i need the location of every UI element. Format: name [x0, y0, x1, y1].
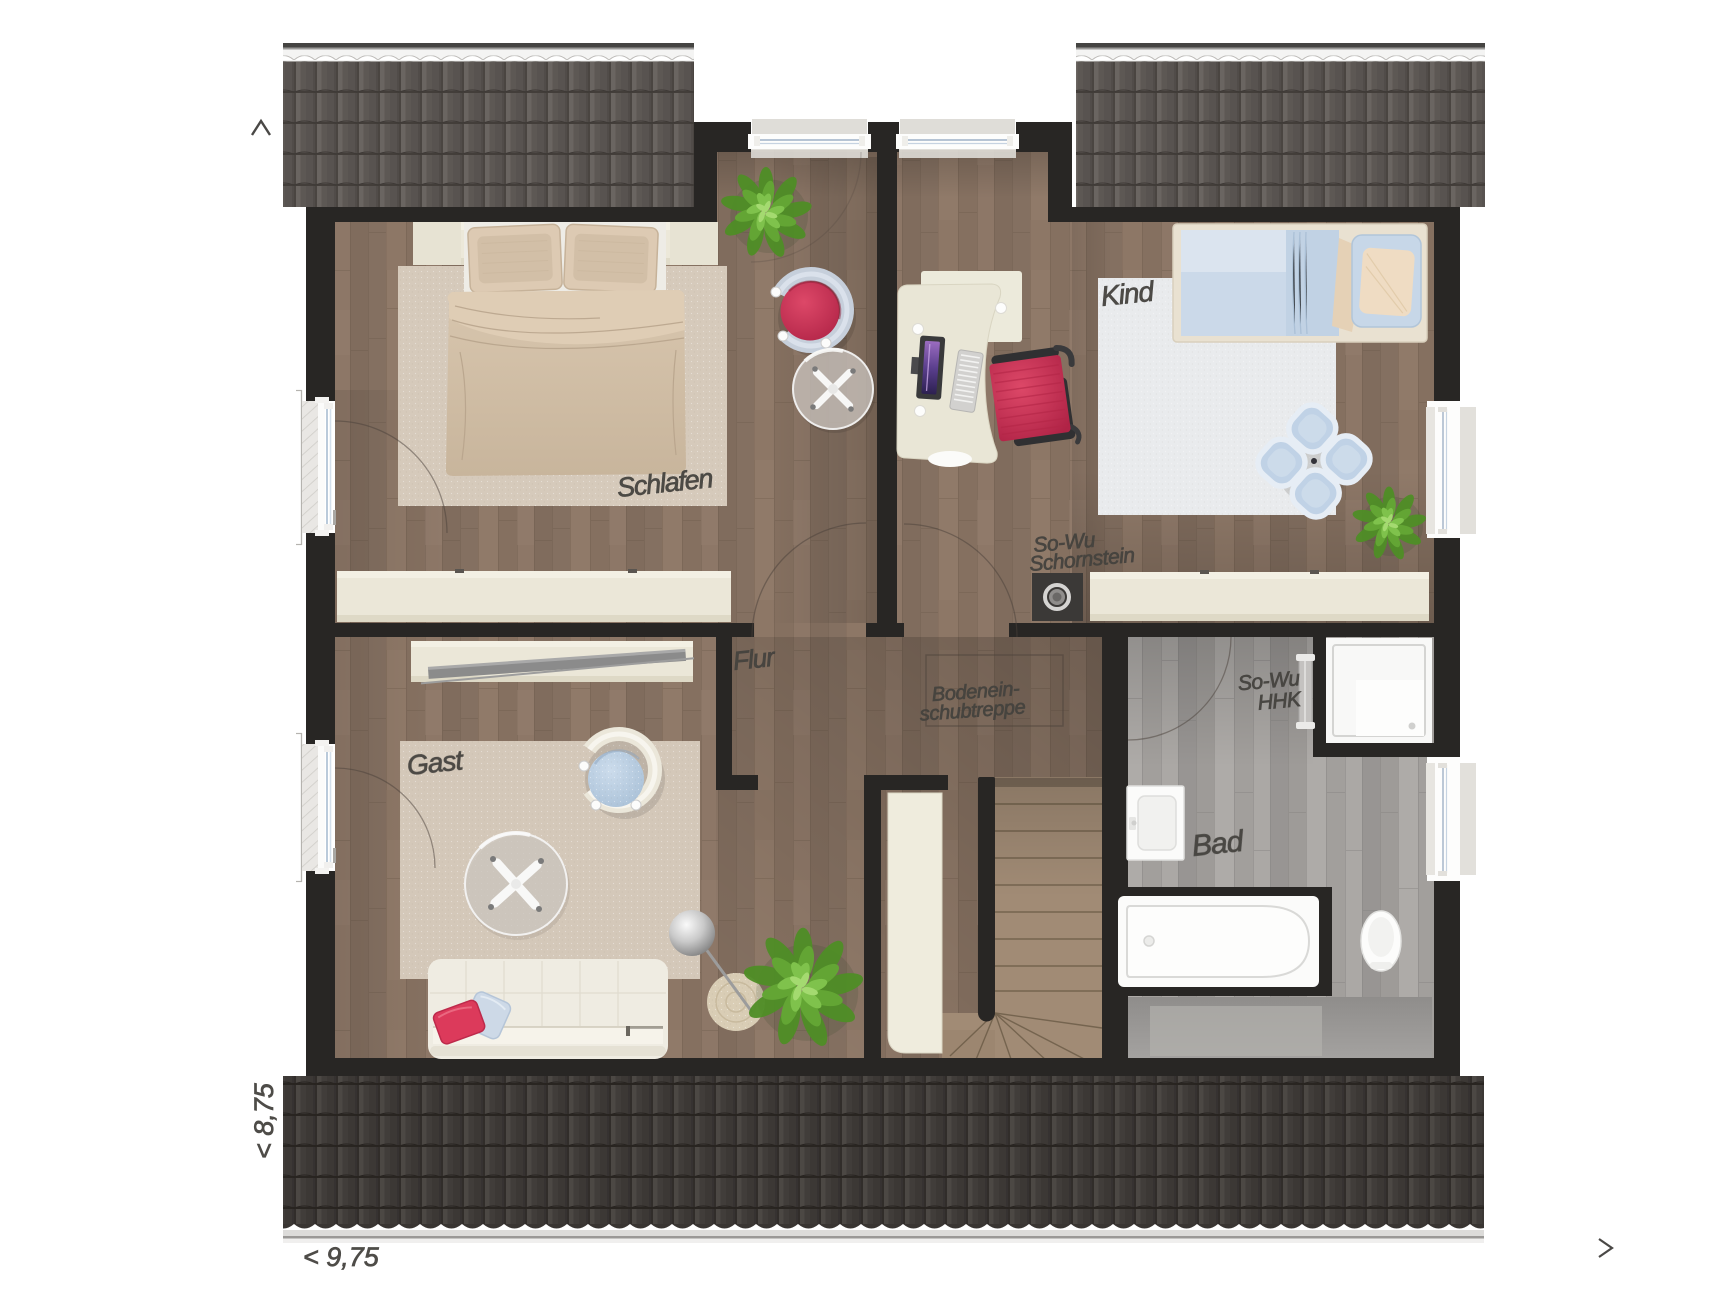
svg-text:< 8,75: < 8,75 [249, 1082, 279, 1159]
svg-text:HHK: HHK [1257, 688, 1303, 715]
svg-text:< 9,75: < 9,75 [303, 1242, 380, 1272]
svg-text:Gast: Gast [405, 744, 465, 781]
svg-text:Kind: Kind [1099, 275, 1156, 312]
svg-text:Bad: Bad [1190, 825, 1246, 863]
svg-text:Flur: Flur [731, 642, 777, 676]
